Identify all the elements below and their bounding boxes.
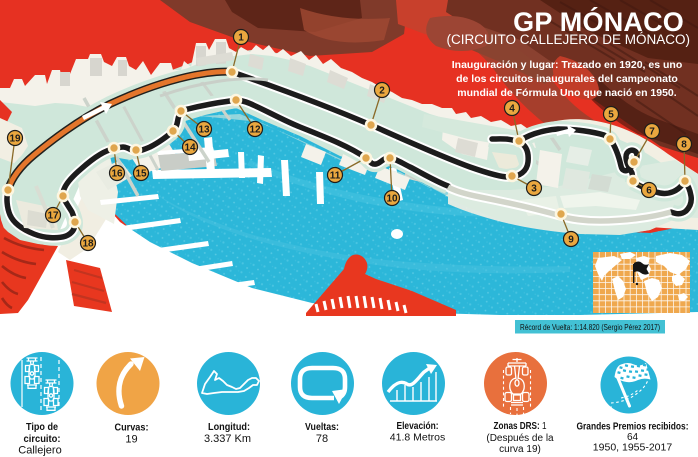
svg-text:10: 10 <box>386 194 398 205</box>
svg-text:16: 16 <box>111 169 123 180</box>
svg-text:de los circuitos inaugurales d: de los circuitos inaugurales del campeon… <box>456 73 678 85</box>
svg-text:5: 5 <box>608 110 614 121</box>
svg-text:11: 11 <box>330 171 341 182</box>
svg-text:Grandes Premios recibidos:: Grandes Premios recibidos: <box>577 422 689 433</box>
svg-text:1: 1 <box>238 33 244 44</box>
svg-text:12: 12 <box>249 125 261 136</box>
svg-text:Elevación:: Elevación: <box>397 420 439 432</box>
svg-text:Curvas:: Curvas: <box>115 422 149 434</box>
svg-text:Callejero: Callejero <box>18 445 61 457</box>
svg-text:Inauguración y lugar: Trazado: Inauguración y lugar: Trazado en 1920, e… <box>452 59 682 71</box>
svg-text:13: 13 <box>198 125 210 136</box>
svg-text:3: 3 <box>531 184 537 195</box>
svg-text:41.8 Metros: 41.8 Metros <box>390 432 445 444</box>
svg-text:14: 14 <box>184 143 196 154</box>
svg-text:2: 2 <box>379 86 385 97</box>
svg-text:78: 78 <box>316 433 328 445</box>
svg-text:4: 4 <box>509 104 515 115</box>
svg-text:8: 8 <box>681 140 687 151</box>
svg-text:1950, 1955-2017: 1950, 1955-2017 <box>593 442 673 454</box>
svg-text:curva 19): curva 19) <box>499 444 541 455</box>
svg-text:(CIRCUITO CALLEJERO DE MÓNACO): (CIRCUITO CALLEJERO DE MÓNACO) <box>446 32 690 47</box>
svg-text:15: 15 <box>135 169 147 180</box>
svg-text:Récord de Vuelta: 1:14.820 (Se: Récord de Vuelta: 1:14.820 (Sergio Pérez… <box>520 322 660 332</box>
svg-text:17: 17 <box>47 211 59 222</box>
svg-text:Zonas DRS: 1: Zonas DRS: 1 <box>494 421 547 432</box>
svg-text:mundial de Fórmula Uno que nac: mundial de Fórmula Uno que nació en 1950… <box>457 87 676 99</box>
svg-text:19: 19 <box>125 434 137 446</box>
svg-text:Tipo de: Tipo de <box>26 421 58 433</box>
svg-text:circuito:: circuito: <box>24 433 61 445</box>
svg-text:(Después de la: (Después de la <box>486 433 554 444</box>
svg-text:9: 9 <box>568 235 574 246</box>
svg-text:19: 19 <box>9 134 21 145</box>
svg-text:Vueltas:: Vueltas: <box>305 421 339 433</box>
svg-text:6: 6 <box>646 186 652 197</box>
svg-text:18: 18 <box>82 239 94 250</box>
svg-text:3.337 Km: 3.337 Km <box>204 433 251 445</box>
svg-text:Longitud:: Longitud: <box>208 421 250 433</box>
svg-text:7: 7 <box>649 127 655 138</box>
